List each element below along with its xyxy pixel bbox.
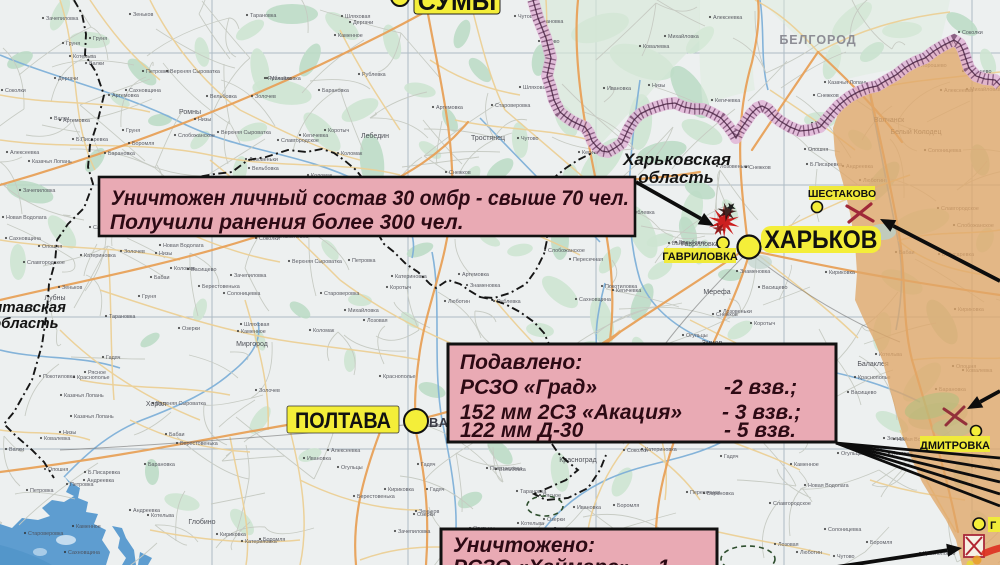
svg-text:Озерки: Озерки (182, 326, 200, 332)
svg-text:Глобино: Глобино (188, 518, 215, 526)
svg-text:область: область (638, 168, 713, 187)
svg-text:Зеньков: Зеньков (133, 12, 153, 18)
svg-text:Зачепиловка: Зачепиловка (234, 273, 266, 279)
svg-text:Каменное: Каменное (338, 33, 363, 39)
svg-text:Кириковка: Кириковка (220, 532, 246, 538)
svg-text:Солоницевка: Солоницевка (828, 527, 861, 533)
svg-text:Снежков: Снежков (749, 165, 771, 171)
svg-text:БЕЛГОРОД: БЕЛГОРОД (779, 33, 856, 47)
svg-text:Староверовка: Староверовка (28, 531, 63, 537)
svg-text:Хорол: Хорол (146, 401, 166, 408)
svg-text:Барановка: Барановка (707, 491, 734, 497)
svg-text:Рублевка: Рублевка (362, 72, 386, 78)
svg-text:Артемовка: Артемовка (462, 272, 489, 278)
svg-text:Кегичевка: Кегичевка (715, 98, 740, 104)
svg-text:Б.Писаревка: Б.Писаревка (88, 470, 120, 476)
svg-text:Краснополье: Краснополье (858, 375, 891, 381)
svg-text:Слобожанское: Слобожанское (548, 248, 585, 254)
svg-text:Верхняя Сыроватка: Верхняя Сыроватка (170, 69, 220, 75)
svg-text:Коротыч: Коротыч (390, 285, 411, 291)
svg-text:Получили ранения более 300 че: Получили ранения более 300 чел. (110, 211, 464, 234)
svg-text:Золочев: Золочев (255, 94, 276, 100)
svg-text:Зачепиловка: Зачепиловка (23, 188, 55, 194)
svg-text:Шляховая: Шляховая (244, 322, 269, 328)
svg-text:Артемовка: Артемовка (436, 105, 463, 111)
svg-text:Славгородское: Славгородское (773, 501, 811, 507)
svg-text:Тростянец: Тростянец (471, 135, 505, 142)
svg-text:Опошня: Опошня (48, 467, 68, 473)
svg-text:Боромля: Боромля (132, 141, 154, 147)
svg-text:Снежков: Снежков (817, 93, 839, 99)
svg-text:Казачья Лопань: Казачья Лопань (64, 393, 104, 399)
svg-text:Груня: Груня (93, 36, 107, 42)
svg-text:Верхняя Сыроватка: Верхняя Сыроватка (221, 130, 271, 136)
svg-text:Гадяч: Гадяч (106, 355, 121, 361)
svg-text:Петровка: Петровка (30, 488, 54, 494)
svg-text:РСЗО «Хаймарс»: РСЗО «Хаймарс» (453, 556, 630, 565)
svg-text:Ромны: Ромны (179, 109, 201, 116)
svg-text:Дергачи: Дергачи (58, 76, 78, 82)
svg-text:Знаменовка: Знаменовка (740, 269, 770, 275)
svg-text:Краснополье: Краснополье (383, 374, 416, 380)
svg-text:Лозовая: Лозовая (367, 318, 388, 324)
svg-text:ПОЛТАВА: ПОЛТАВА (295, 408, 391, 433)
svg-text:Сахновщина: Сахновщина (9, 236, 41, 242)
svg-text:Бабаи: Бабаи (169, 432, 185, 438)
svg-text:Новая Водолага: Новая Водолага (163, 243, 204, 249)
svg-text:Артемовка: Артемовка (112, 93, 139, 99)
svg-text:Котельва: Котельва (151, 513, 174, 519)
svg-text:Золочев: Золочев (124, 249, 145, 255)
svg-text:Харьковская: Харьковская (622, 150, 731, 169)
svg-text:Знаменовка: Знаменовка (470, 283, 500, 289)
svg-text:Боромля: Боромля (617, 503, 639, 509)
svg-text:Лозовая: Лозовая (778, 542, 799, 548)
svg-text:Алексеевка: Алексеевка (10, 150, 39, 156)
svg-text:Ивановка: Ивановка (307, 456, 331, 462)
svg-text:Берестовенька: Берестовенька (180, 441, 218, 447)
svg-text:Солоницевка: Солоницевка (227, 291, 260, 297)
svg-text:Ивановка: Ивановка (577, 505, 601, 511)
svg-text:Сахновщина: Сахновщина (579, 297, 611, 303)
svg-text:Низы: Низы (198, 117, 211, 123)
svg-text:Груня: Груня (66, 41, 80, 47)
svg-text:Краснополье: Краснополье (77, 375, 110, 381)
svg-text:Кегичевка: Кегичевка (616, 288, 641, 294)
svg-text:Миргород: Миргород (236, 341, 268, 348)
svg-text:Петровка: Петровка (352, 258, 376, 264)
svg-text:122 мм Д-30: 122 мм Д-30 (460, 419, 584, 442)
svg-text:Славгородское: Славгородское (27, 260, 65, 266)
svg-text:Соколки: Соколки (962, 30, 983, 36)
svg-text:Кегичевка: Кегичевка (303, 133, 328, 139)
svg-text:Шляховая: Шляховая (345, 14, 370, 20)
svg-text:Михайловка: Михайловка (668, 33, 699, 40)
svg-text:- 5 взв.: - 5 взв. (724, 419, 796, 442)
svg-text:ШЕСТАКОВО: ШЕСТАКОВО (808, 188, 876, 200)
svg-text:Тарановка: Тарановка (109, 314, 135, 320)
svg-text:Опошня: Опошня (808, 147, 828, 153)
svg-text:Новая Водолага: Новая Водолага (6, 215, 47, 221)
svg-text:ГАВРИЛОВКА: ГАВРИЛОВКА (662, 251, 738, 263)
svg-text:Барановка: Барановка (148, 462, 175, 468)
svg-text:Кириковка: Кириковка (829, 270, 855, 276)
svg-text:Гадяч: Гадяч (724, 454, 739, 460)
svg-text:Полтавская: Полтавская (0, 299, 66, 316)
svg-text:Коротыч: Коротыч (328, 128, 349, 134)
svg-text:Тарановка: Тарановка (250, 13, 276, 19)
svg-text:Мерефа: Мерефа (703, 289, 730, 296)
svg-text:Гавриловка: Гавриловка (681, 241, 719, 248)
svg-text:Коломак: Коломак (341, 151, 363, 157)
svg-text:Валки: Валки (54, 116, 69, 122)
svg-text:Васищево: Васищево (762, 285, 787, 291)
svg-text:Боромля: Боромля (870, 540, 892, 546)
svg-text:Катериновка: Катериновка (645, 447, 677, 453)
svg-text:Котельва: Котельва (521, 521, 544, 527)
svg-text:Катериновка: Катериновка (84, 253, 116, 259)
svg-text:Огульцы: Огульцы (686, 333, 708, 339)
svg-text:ХАРЬКОВ: ХАРЬКОВ (765, 226, 878, 254)
svg-text:Староверовка: Староверовка (324, 291, 359, 297)
svg-text:Груня: Груня (142, 294, 156, 300)
svg-text:Вельбовка: Вельбовка (252, 166, 279, 172)
svg-text:Казачья Лопань: Казачья Лопань (32, 159, 72, 165)
svg-text:Зачепиловка: Зачепиловка (46, 16, 78, 22)
svg-text:Староверовка: Староверовка (495, 103, 530, 109)
svg-text:Уничтожено:: Уничтожено: (453, 534, 595, 557)
svg-text:Пересечная: Пересечная (573, 257, 603, 263)
svg-text:Барановка: Барановка (108, 151, 135, 157)
svg-text:Каменное: Каменное (794, 462, 819, 468)
svg-text:ДМИТРОВКА: ДМИТРОВКА (920, 440, 990, 452)
svg-text:Валки: Валки (9, 447, 24, 453)
svg-text:Золочев: Золочев (259, 388, 280, 394)
svg-text:Соколки: Соколки (627, 448, 648, 454)
svg-text:ВА: ВА (429, 415, 449, 430)
svg-text:Сахновщина: Сахновщина (68, 550, 100, 556)
svg-text:Снежков: Снежков (449, 170, 471, 176)
svg-text:Покотиловка: Покотиловка (43, 374, 75, 380)
svg-text:Зеньков: Зеньков (419, 509, 439, 515)
svg-text:область: область (0, 315, 59, 332)
svg-text:Барановка: Барановка (322, 88, 349, 94)
svg-text:Казачья Лопань: Казачья Лопань (74, 414, 114, 420)
svg-text:Дергачи: Дергачи (353, 20, 373, 26)
svg-text:Огульцы: Огульцы (341, 465, 363, 471)
svg-text:Груня: Груня (126, 128, 140, 134)
svg-text:Ивановка: Ивановка (607, 86, 631, 92)
svg-text:Гадяч: Гадяч (430, 487, 445, 493)
svg-text:Берестовенька: Берестовенька (202, 284, 240, 290)
svg-text:Новая Водолага: Новая Водолага (808, 483, 849, 489)
svg-text:Соколки: Соколки (5, 88, 26, 94)
svg-text:Ковалевка: Ковалевка (44, 436, 70, 442)
svg-text:Люботин: Люботин (448, 299, 470, 305)
svg-text:Вельбовка: Вельбовка (499, 467, 526, 473)
svg-text:Гадяч: Гадяч (421, 462, 436, 468)
svg-text:Зачепиловка: Зачепиловка (398, 529, 430, 535)
svg-text:Низы: Низы (159, 251, 172, 257)
svg-text:Коротыч: Коротыч (754, 321, 775, 327)
svg-text:Петровка: Петровка (70, 482, 94, 488)
svg-text:Верхняя Сыроватка: Верхняя Сыроватка (292, 259, 342, 265)
svg-text:Берестовенька: Берестовенька (357, 494, 395, 500)
svg-text:СУМЫ: СУМЫ (418, 0, 497, 16)
svg-text:Лозовеньки: Лозовеньки (723, 309, 752, 315)
svg-text:Алексеевка: Алексеевка (331, 448, 360, 454)
svg-text:Б.Писаревка: Б.Писаревка (810, 162, 842, 168)
svg-text:Подавлено:: Подавлено: (460, 351, 582, 374)
svg-text:Вельбовка: Вельбовка (210, 94, 237, 100)
svg-text:Люботин: Люботин (800, 550, 822, 556)
svg-text:Слобожанское: Слобожанское (178, 133, 215, 139)
svg-text:Алексеевка: Алексеевка (713, 15, 742, 21)
svg-text:Низы: Низы (652, 83, 665, 89)
svg-text:Бабаи: Бабаи (154, 275, 170, 281)
svg-text:Михайловка: Михайловка (348, 307, 379, 314)
svg-text:Рублевка: Рублевка (268, 76, 292, 82)
svg-text:Лебедин: Лебедин (361, 132, 389, 140)
svg-text:Каменное: Каменное (76, 524, 101, 530)
svg-text:Озерки: Озерки (547, 517, 565, 523)
svg-text:- 1: - 1 (645, 556, 670, 565)
svg-text:Каменное: Каменное (241, 329, 266, 335)
svg-text:Зеньков: Зеньков (62, 285, 82, 291)
svg-text:Опошня: Опошня (42, 244, 62, 250)
svg-text:Катериновка: Катериновка (245, 539, 277, 545)
svg-text:Уничтожен личный состав 30 омб: Уничтожен личный состав 30 омбр - свыше … (111, 187, 629, 210)
svg-text:РСЗО «Град»: РСЗО «Град» (460, 376, 597, 399)
svg-text:Васищево: Васищево (191, 267, 216, 273)
svg-text:Коломак: Коломак (313, 328, 335, 334)
svg-text:Чутово: Чутово (837, 554, 855, 560)
svg-text:Ковалевка: Ковалевка (643, 44, 669, 50)
svg-text:Петровка: Петровка (146, 69, 170, 75)
svg-text:-2 взв.;: -2 взв.; (724, 376, 797, 399)
svg-text:Г: Г (990, 520, 997, 532)
svg-text:Чутово: Чутово (521, 136, 539, 142)
svg-text:Васищево: Васищево (851, 390, 876, 396)
svg-text:Кириковка: Кириковка (388, 487, 414, 493)
